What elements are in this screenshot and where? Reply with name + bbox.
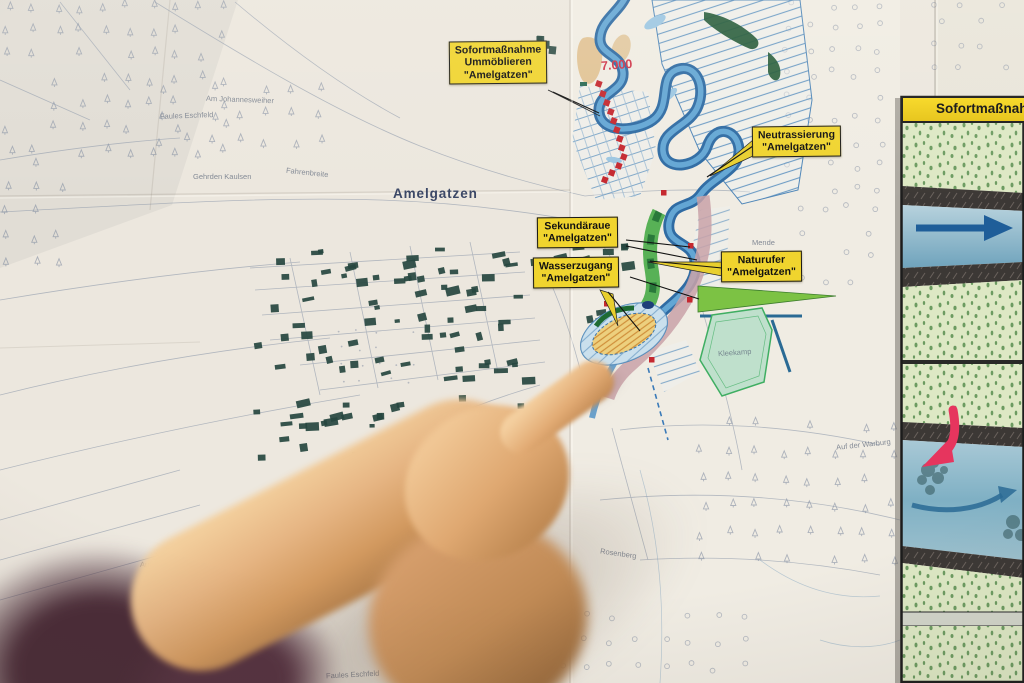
callout-neutrassierung: Neutrassierung "Amelgatzen" [752, 126, 841, 158]
place-label: Faules Eschfeld [160, 110, 214, 121]
map-artwork [0, 0, 1024, 683]
legend-panel [895, 97, 1024, 683]
town-name-label: Amelgatzen [393, 186, 478, 201]
callout-line: Sofortmaßnahme [455, 44, 541, 57]
callout-line: Ummöblieren [455, 56, 541, 69]
callout-sekundaeraue: Sekundäraue "Amelgatzen" [537, 217, 618, 249]
paper-background [0, 0, 1024, 683]
callout-line: "Amelgatzen" [543, 232, 612, 245]
callout-line: Wasserzugang [539, 260, 613, 273]
legend-panel-title: Sofortmaßnahme [901, 96, 1024, 123]
measurement-label: 7.000 [601, 57, 633, 73]
callout-sofortmassnahme-ummoeblieren: Sofortmaßnahme Ummöblieren "Amelgatzen" [449, 40, 548, 84]
callout-wasserzugang: Wasserzugang "Amelgatzen" [533, 257, 619, 289]
place-label: Mende [752, 238, 775, 247]
photo-of-planning-map: Amelgatzen 7.000 Am Johannesweiher Faule… [0, 0, 1024, 683]
callout-line: Sekundäraue [543, 220, 612, 233]
callout-line: "Amelgatzen" [758, 141, 835, 154]
callout-line: "Amelgatzen" [539, 272, 613, 285]
callout-line: "Amelgatzen" [455, 68, 541, 81]
place-label: Gehrden Kaulsen [193, 172, 251, 181]
callout-line: Naturufer [727, 254, 796, 267]
callout-naturufer: Naturufer "Amelgatzen" [721, 251, 802, 283]
callout-line: Neutrassierung [758, 129, 835, 142]
callout-line: "Amelgatzen" [727, 266, 796, 279]
